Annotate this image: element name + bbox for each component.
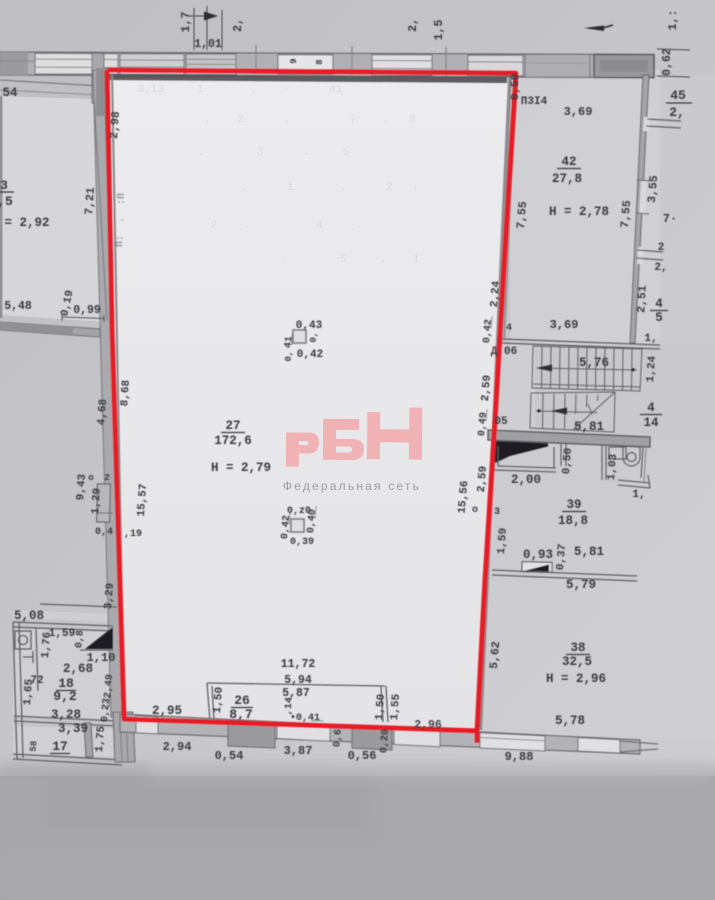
svg-text:2,49: 2,49 [103, 674, 116, 699]
svg-text:0,20: 0,20 [379, 729, 392, 754]
svg-text:54: 54 [2, 86, 18, 100]
svg-text:0,37: 0,37 [555, 543, 569, 570]
svg-text:Н = 2,79: Н = 2,79 [211, 461, 271, 475]
svg-text:0,43: 0,43 [296, 320, 323, 332]
svg-text:5,08: 5,08 [14, 609, 44, 623]
svg-text:4: 4 [647, 401, 655, 415]
svg-text:2,51: 2,51 [635, 285, 649, 313]
svg-text:0,6: 0,6 [332, 729, 345, 748]
svg-text:4,68: 4,68 [96, 398, 110, 426]
svg-text:0,62: 0,62 [661, 48, 674, 76]
svg-text:Н = 2,96: Н = 2,96 [546, 672, 606, 686]
svg-text:26: 26 [234, 693, 250, 708]
svg-text:1,65: 1,65 [22, 678, 36, 706]
svg-text:9,43: 9,43 [75, 473, 89, 501]
svg-text:•0,4̲1̲: •0,4̲1̲ [290, 713, 324, 724]
svg-text:27,8: 27,8 [552, 172, 582, 186]
svg-text:9,88: 9,88 [505, 750, 534, 764]
svg-text:. 2 . 7 .: . 2 . 7 . 8 [204, 114, 415, 126]
svg-text:. 5 . 1: . 5 . 1 [281, 254, 420, 266]
svg-text:Н = 2,78: Н = 2,78 [549, 205, 609, 219]
svg-text:2,: 2, [654, 262, 667, 274]
svg-text:1,24: 1,24 [645, 355, 659, 383]
svg-text:32,5: 32,5 [562, 655, 592, 669]
svg-text:3,28: 3,28 [51, 708, 81, 722]
svg-text:1,50: 1,50 [374, 693, 388, 720]
svg-text:1,75: 1,75 [94, 725, 108, 753]
svg-text:38: 38 [570, 641, 585, 655]
svg-text:2,95: 2,95 [152, 704, 182, 718]
svg-text:5,76: 5,76 [579, 356, 609, 370]
svg-text:0,99: 0,99 [73, 304, 101, 317]
svg-text:2,: 2, [407, 18, 420, 32]
svg-text:4: 4 [655, 297, 663, 311]
svg-text:172,6: 172,6 [214, 434, 252, 448]
svg-text:5,79: 5,79 [566, 578, 596, 592]
svg-text:11,72: 11,72 [281, 658, 316, 671]
svg-text:1,: 1, [644, 333, 657, 345]
svg-text:39: 39 [566, 498, 581, 512]
svg-text:1,7: 1,7 [180, 12, 193, 33]
svg-text:5,81: 5,81 [574, 420, 604, 434]
svg-text:Федеральная сеть: Федеральная сеть [283, 479, 421, 493]
svg-text:5,81: 5,81 [574, 545, 604, 559]
svg-text:,5: ,5 [0, 194, 13, 209]
svg-text:2,: 2, [232, 18, 245, 32]
svg-text:3,87: 3,87 [284, 744, 313, 758]
svg-text:2,96: 2,96 [414, 719, 442, 732]
svg-text:15,57: 15,57 [136, 483, 150, 517]
svg-text:. 1 . 2 .: . 1 . 2 . [241, 182, 419, 194]
svg-text:1,: 1, [632, 489, 645, 501]
svg-text:1,50: 1,50 [212, 686, 226, 713]
svg-text:4: 4 [506, 323, 512, 334]
svg-text:27: 27 [225, 419, 240, 433]
svg-text:1,:: 1,: [667, 10, 680, 31]
svg-text:7,55: 7,55 [619, 200, 634, 229]
svg-text:Π3Ι4: Π3Ι4 [521, 96, 548, 108]
svg-text:9: 9 [289, 58, 299, 63]
svg-text:5,62: 5,62 [488, 641, 503, 670]
svg-text:7,55: 7,55 [515, 201, 530, 230]
svg-text:0,56: 0,56 [348, 749, 377, 763]
svg-text:Д 06: Д 06 [491, 346, 517, 358]
svg-text:2 . 4 .: 2 . 4 . [197, 220, 362, 232]
svg-text:1,29: 1,29 [90, 488, 104, 515]
svg-text:0,42: 0,42 [297, 349, 323, 361]
svg-text:8,68: 8,68 [119, 379, 133, 407]
svg-text:3,29: 3,29 [103, 582, 117, 609]
svg-text:3,69: 3,69 [550, 318, 579, 332]
svg-text:1,59: 1,59 [49, 628, 75, 640]
svg-text:8: 8 [315, 59, 325, 64]
svg-text:0,: 0, [284, 350, 295, 362]
svg-text:05: 05 [494, 416, 508, 428]
svg-text:9,2: 9,2 [53, 689, 77, 704]
svg-text:8,7: 8,7 [229, 707, 252, 722]
svg-text:0,93: 0,93 [523, 548, 553, 562]
svg-text:1,59: 1,59 [496, 527, 510, 554]
svg-text:1,55: 1,55 [389, 693, 403, 721]
svg-text:2,: 2, [669, 105, 685, 120]
svg-text:1,03: 1,03 [606, 453, 620, 481]
svg-text:7·: 7· [663, 212, 677, 226]
svg-text:0,8: 0,8 [74, 630, 87, 649]
svg-text:0,54: 0,54 [215, 749, 244, 763]
svg-text:58: 58 [29, 740, 40, 752]
svg-text:45: 45 [670, 88, 686, 103]
svg-text:2,00: 2,00 [511, 473, 541, 487]
svg-text:3,55: 3,55 [646, 175, 661, 204]
svg-text:14: 14 [643, 416, 659, 430]
svg-text:18,8: 18,8 [558, 514, 588, 528]
svg-text:0,: 0, [309, 331, 320, 343]
svg-text:2,68: 2,68 [63, 662, 93, 676]
svg-text:0,50: 0,50 [561, 447, 575, 474]
svg-text:5,48: 5,48 [4, 300, 32, 313]
svg-text:2: 2 [658, 242, 665, 254]
svg-text:. 3 . 5: . 3 . 5 [191, 147, 349, 159]
svg-text:2,24: 2,24 [489, 280, 503, 308]
svg-text:7,21: 7,21 [83, 187, 98, 216]
svg-text:5,94: 5,94 [284, 674, 312, 687]
svg-text:17: 17 [52, 739, 68, 754]
svg-text:3,39: 3,39 [58, 722, 88, 736]
svg-text:П: . :П: П: . :П [115, 193, 128, 247]
svg-text:о 2: о 2 [88, 473, 110, 483]
svg-text:2,59: 2,59 [476, 465, 490, 492]
svg-text:2,98: 2,98 [108, 111, 123, 140]
svg-text:5: 5 [655, 311, 663, 325]
svg-text:0,39: 0,39 [290, 537, 314, 548]
svg-text:1,5: 1,5 [433, 20, 446, 41]
svg-text:5,78: 5,78 [555, 714, 585, 728]
svg-text:о: о [472, 505, 478, 516]
svg-text:3,69: 3,69 [564, 105, 593, 119]
svg-text:2,59: 2,59 [480, 374, 494, 401]
svg-text:2,94: 2,94 [163, 740, 192, 754]
svg-text:42: 42 [561, 155, 576, 169]
svg-text:= 2,92: = 2,92 [4, 216, 49, 230]
svg-text:3: 3 [0, 178, 8, 193]
svg-text:1,01: 1,01 [194, 38, 222, 51]
svg-text:3: 3 [494, 507, 500, 518]
svg-text:0,4: 0,4 [95, 527, 113, 538]
svg-text:,19: ,19 [124, 529, 142, 540]
svg-text:3,13 1 . - 4: 3,13 1 . - 41 [138, 84, 343, 96]
